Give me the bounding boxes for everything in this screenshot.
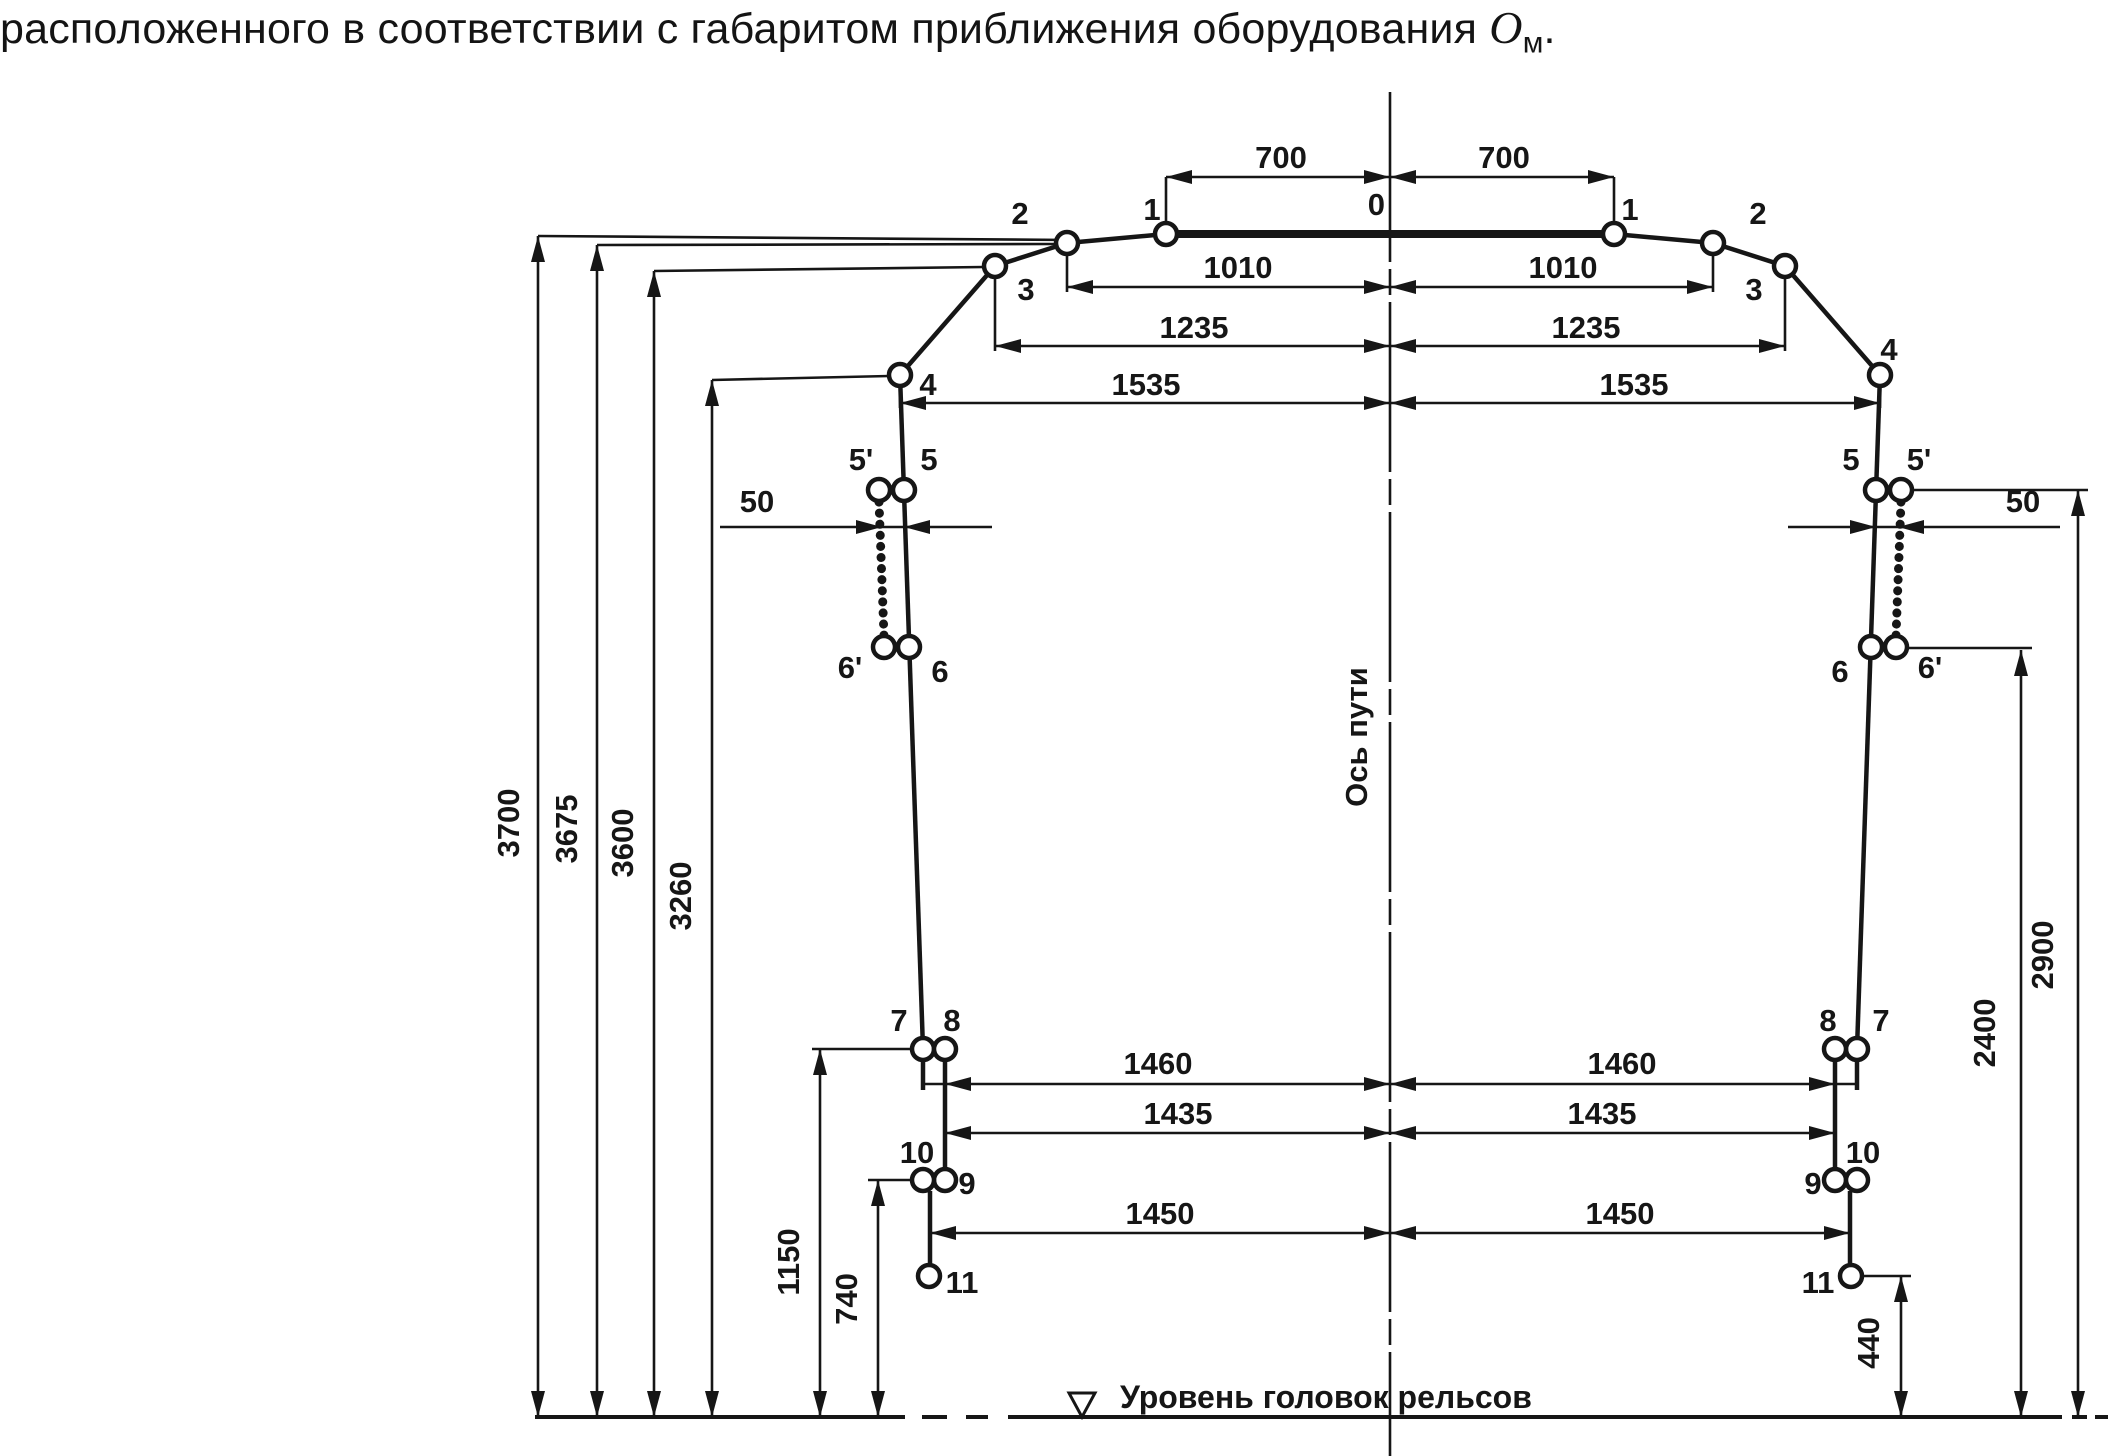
beaded-offset-line bbox=[1896, 502, 1901, 636]
track-axis-label: Ось пути bbox=[1339, 667, 1374, 807]
document-page: { "title": { "prefix": "расположенного в… bbox=[0, 0, 2111, 1456]
svg-text:2900: 2900 bbox=[2025, 921, 2060, 990]
svg-text:1435: 1435 bbox=[1568, 1096, 1637, 1131]
svg-text:6: 6 bbox=[1831, 654, 1848, 689]
svg-text:6: 6 bbox=[931, 654, 948, 689]
svg-text:700: 700 bbox=[1255, 140, 1307, 175]
svg-text:1235: 1235 bbox=[1160, 310, 1229, 345]
svg-text:7: 7 bbox=[1872, 1003, 1889, 1038]
svg-text:50: 50 bbox=[740, 484, 774, 519]
svg-text:11: 11 bbox=[1802, 1265, 1835, 1300]
svg-text:1010: 1010 bbox=[1204, 250, 1273, 285]
svg-text:4: 4 bbox=[919, 367, 937, 402]
level-mark-triangle-icon bbox=[1069, 1393, 1095, 1417]
svg-text:10: 10 bbox=[900, 1135, 934, 1170]
svg-text:1435: 1435 bbox=[1144, 1096, 1213, 1131]
svg-text:2: 2 bbox=[1011, 196, 1028, 231]
svg-text:5: 5 bbox=[1842, 442, 1859, 477]
svg-text:8: 8 bbox=[1819, 1003, 1836, 1038]
svg-text:740: 740 bbox=[829, 1273, 864, 1325]
svg-text:1150: 1150 bbox=[771, 1228, 806, 1295]
svg-text:7: 7 bbox=[890, 1003, 907, 1038]
svg-text:1450: 1450 bbox=[1126, 1196, 1195, 1231]
svg-text:3700: 3700 bbox=[491, 789, 526, 858]
svg-text:1010: 1010 bbox=[1529, 250, 1598, 285]
svg-text:1: 1 bbox=[1621, 192, 1638, 227]
svg-text:9: 9 bbox=[958, 1166, 975, 1201]
svg-text:1235: 1235 bbox=[1552, 310, 1621, 345]
svg-text:10: 10 bbox=[1846, 1135, 1880, 1170]
svg-text:5: 5 bbox=[920, 442, 937, 477]
svg-text:2: 2 bbox=[1749, 196, 1766, 231]
svg-text:1535: 1535 bbox=[1600, 367, 1669, 402]
svg-text:9: 9 bbox=[1804, 1166, 1821, 1201]
svg-text:3675: 3675 bbox=[549, 795, 584, 864]
svg-text:6': 6' bbox=[1918, 650, 1943, 685]
svg-text:440: 440 bbox=[1851, 1317, 1886, 1369]
svg-text:8: 8 bbox=[943, 1003, 960, 1038]
svg-text:700: 700 bbox=[1478, 140, 1530, 175]
svg-text:1: 1 bbox=[1143, 192, 1160, 227]
svg-text:2400: 2400 bbox=[1967, 999, 2002, 1068]
svg-text:50: 50 bbox=[2006, 484, 2040, 519]
svg-text:0: 0 bbox=[1368, 187, 1385, 222]
svg-text:4: 4 bbox=[1880, 332, 1898, 367]
svg-text:6': 6' bbox=[838, 650, 863, 685]
svg-text:1460: 1460 bbox=[1124, 1046, 1193, 1081]
clearance-gauge-diagram: 0112233445'555'6'666'7887109109111170070… bbox=[0, 0, 2111, 1456]
svg-text:3600: 3600 bbox=[605, 809, 640, 878]
svg-text:11: 11 bbox=[946, 1265, 979, 1300]
svg-text:1450: 1450 bbox=[1586, 1196, 1655, 1231]
svg-text:5': 5' bbox=[1907, 442, 1932, 477]
svg-text:1460: 1460 bbox=[1588, 1046, 1657, 1081]
svg-text:3260: 3260 bbox=[663, 862, 698, 931]
svg-text:Ось пути: Ось пути bbox=[1339, 667, 1374, 807]
beaded-offset-line bbox=[879, 502, 884, 636]
svg-text:1535: 1535 bbox=[1112, 367, 1181, 402]
svg-text:5': 5' bbox=[849, 442, 874, 477]
svg-text:3: 3 bbox=[1017, 272, 1034, 307]
svg-text:3: 3 bbox=[1745, 272, 1762, 307]
rail-head-level-label: Уровень головок рельсов bbox=[1120, 1379, 1532, 1415]
svg-text:Уровень головок рельсов: Уровень головок рельсов bbox=[1120, 1379, 1532, 1415]
